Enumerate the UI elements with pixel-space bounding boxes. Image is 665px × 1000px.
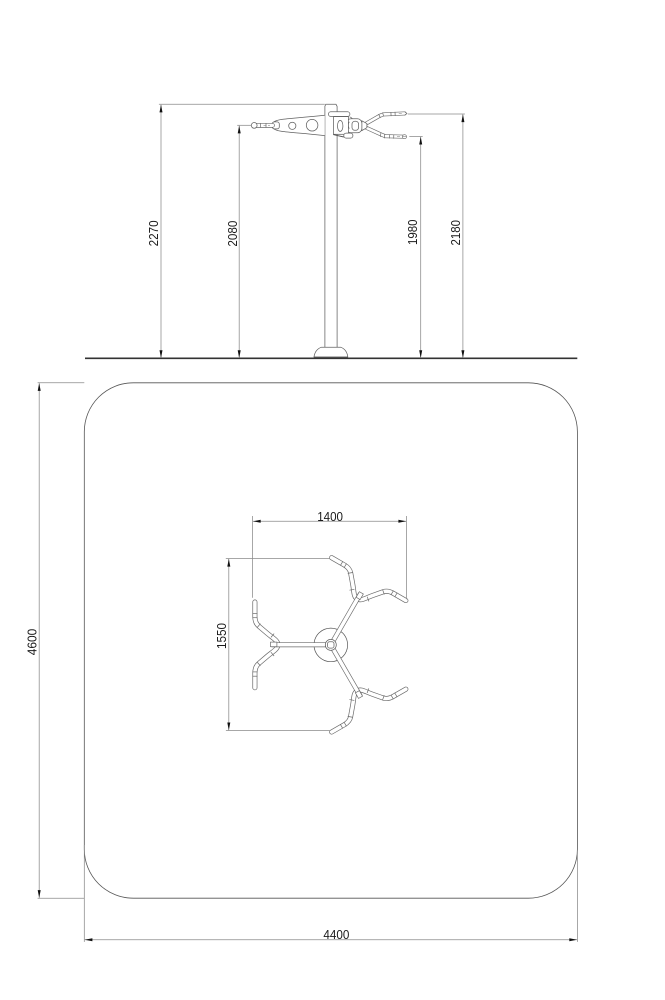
svg-text:2080: 2080 [225, 221, 240, 247]
svg-text:4400: 4400 [323, 927, 349, 942]
svg-text:2270: 2270 [146, 220, 161, 246]
svg-text:1400: 1400 [317, 509, 343, 524]
svg-text:1550: 1550 [214, 623, 229, 649]
svg-text:2180: 2180 [448, 220, 463, 246]
svg-text:4600: 4600 [25, 629, 40, 655]
svg-text:1980: 1980 [405, 220, 420, 246]
